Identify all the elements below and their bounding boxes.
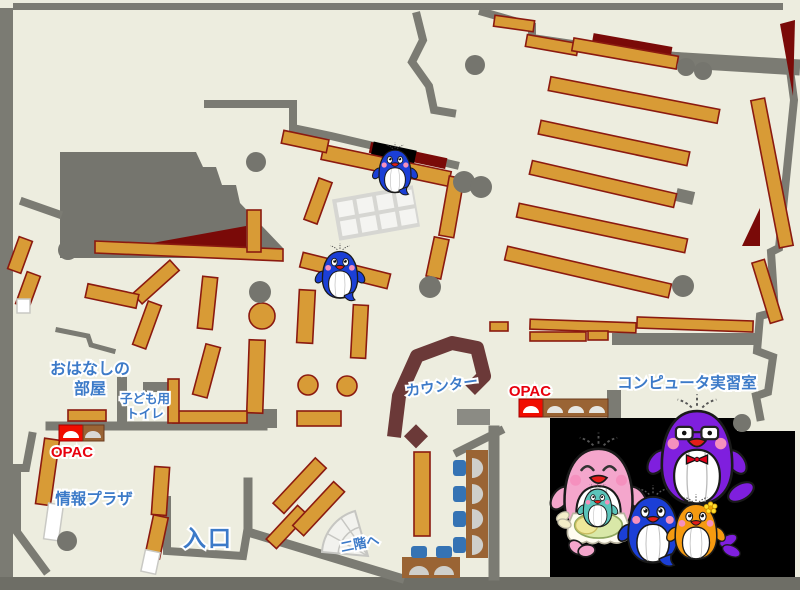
floor-map-svg: おはなしの 部屋 子ども用 トイレ OPAC 情報プラザ 入口 カウンター OP… <box>0 0 800 590</box>
pillar <box>733 414 751 432</box>
opac-terminal-children <box>59 425 104 441</box>
label-computer-room: コンピュータ実習室 <box>617 373 757 392</box>
round-table <box>249 303 275 329</box>
label-entrance: 入口 <box>183 525 233 551</box>
library-floor-map: おはなしの 部屋 子ども用 トイレ OPAC 情報プラザ 入口 カウンター OP… <box>0 0 800 590</box>
opac-terminal-main <box>519 399 608 417</box>
round-table <box>298 375 318 395</box>
label-kids-toilet: 子ども用 <box>120 392 170 406</box>
label-storytelling-room: おはなしの <box>50 360 130 378</box>
label-kids-toilet-2: トイレ <box>126 407 164 421</box>
label-opac-children: OPAC <box>51 444 93 461</box>
label-info-plaza: 情報プラザ <box>55 489 133 508</box>
round-table <box>337 376 357 396</box>
label-opac-main: OPAC <box>509 383 551 400</box>
label-storytelling-room-2: 部屋 <box>74 379 106 398</box>
